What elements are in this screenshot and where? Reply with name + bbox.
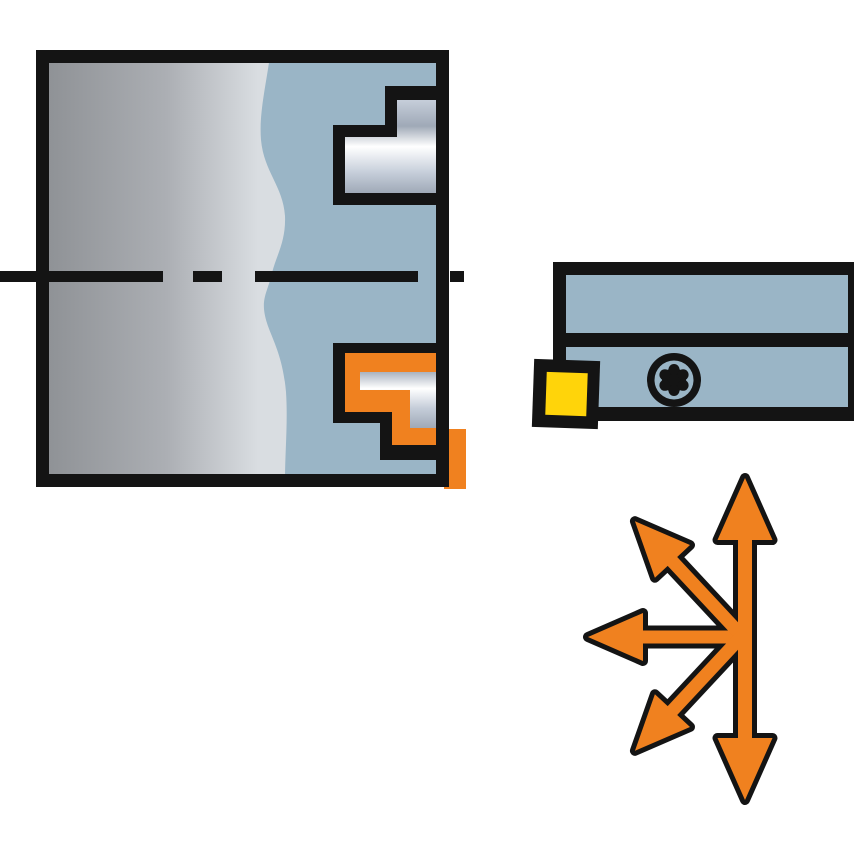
tool-holder (532, 262, 854, 429)
holder-lower-bar (566, 347, 848, 407)
cutting-insert (545, 372, 587, 416)
centerline-dash (450, 271, 464, 282)
insert-pocket (532, 359, 600, 429)
holder-upper-bar (566, 275, 848, 333)
workpiece-assembly (0, 56, 466, 489)
centerline-dash (193, 271, 222, 282)
machining-diagram (0, 0, 854, 854)
torx-screw (647, 353, 701, 407)
centerline-dash (255, 271, 418, 282)
diagram-svg (0, 0, 854, 854)
workpiece-section (48, 56, 287, 480)
centerline-dash (0, 271, 163, 282)
